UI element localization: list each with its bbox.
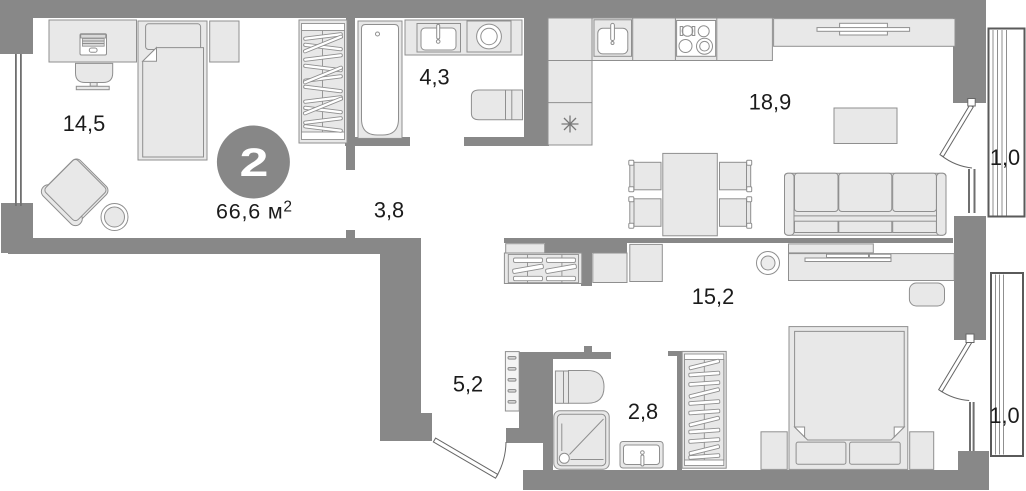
svg-text:5,2: 5,2	[453, 372, 483, 397]
svg-text:2,8: 2,8	[628, 399, 658, 424]
svg-text:15,2: 15,2	[692, 284, 734, 309]
svg-text:1,0: 1,0	[990, 145, 1020, 170]
svg-text:14,5: 14,5	[63, 111, 105, 136]
svg-text:66,6 м2: 66,6 м2	[216, 199, 293, 224]
svg-text:3,8: 3,8	[374, 198, 404, 223]
svg-text:1,0: 1,0	[989, 403, 1019, 428]
svg-text:4,3: 4,3	[419, 65, 449, 90]
svg-text:2: 2	[240, 140, 269, 185]
svg-text:18,9: 18,9	[749, 90, 791, 115]
